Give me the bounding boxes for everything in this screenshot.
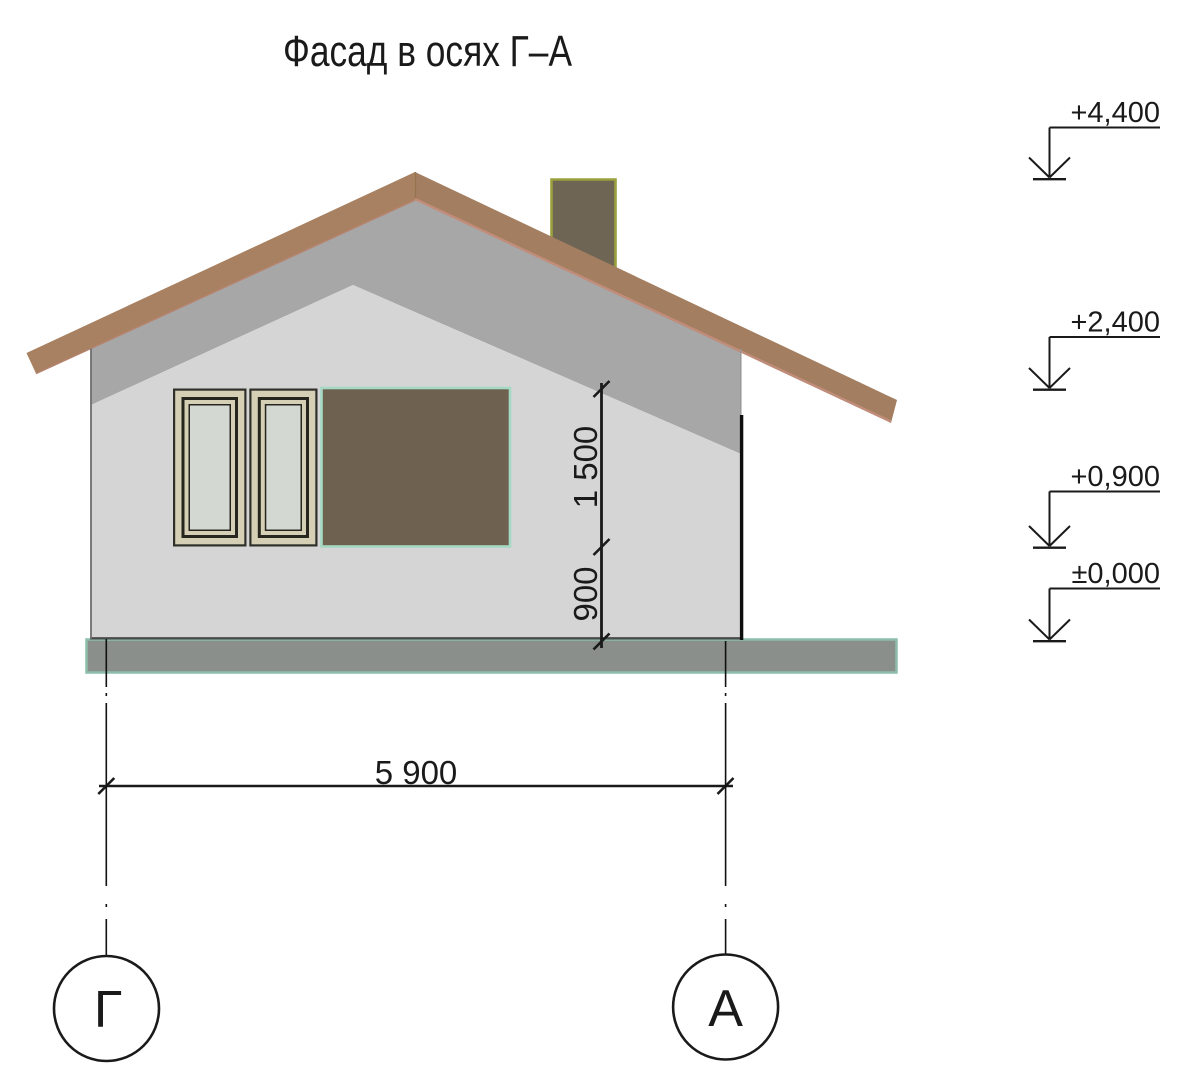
svg-text:Г: Г	[94, 981, 122, 1039]
svg-text:900: 900	[567, 566, 604, 621]
svg-text:А: А	[708, 980, 743, 1038]
svg-text:+0,900: +0,900	[1070, 461, 1160, 493]
svg-text:1 500: 1 500	[567, 426, 604, 509]
svg-text:Фасад в осях Г–А: Фасад в осях Г–А	[283, 27, 573, 76]
svg-text:±0,000: ±0,000	[1072, 558, 1161, 590]
svg-text:+2,400: +2,400	[1070, 307, 1160, 339]
svg-text:+4,400: +4,400	[1070, 97, 1160, 129]
svg-text:5 900: 5 900	[375, 754, 458, 791]
